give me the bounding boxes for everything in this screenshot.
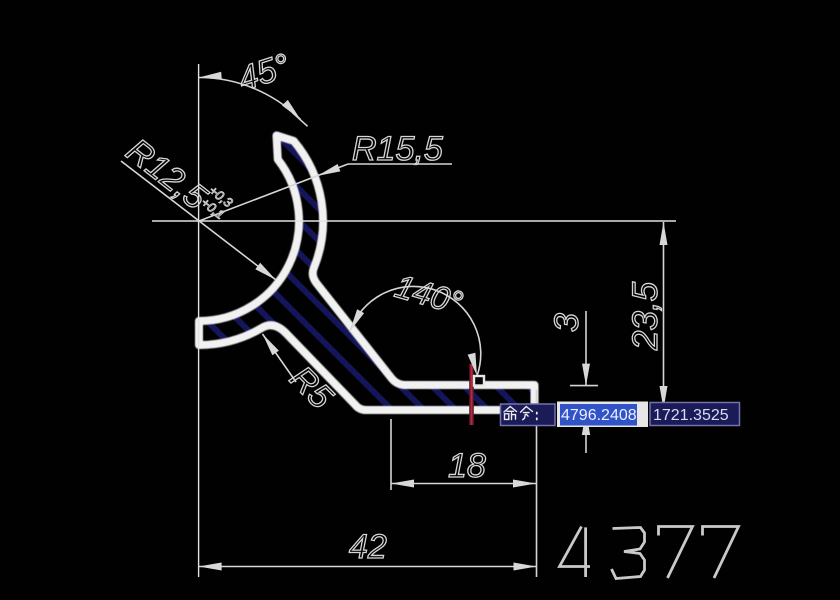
svg-text:4796.2408: 4796.2408: [561, 407, 637, 424]
svg-text:1721.3525: 1721.3525: [653, 407, 729, 424]
svg-text:23,5: 23,5: [626, 281, 665, 351]
svg-text:42: 42: [349, 528, 387, 566]
svg-text:R15,5: R15,5: [352, 130, 443, 168]
svg-text:3: 3: [548, 313, 586, 332]
svg-text:18: 18: [448, 447, 486, 485]
